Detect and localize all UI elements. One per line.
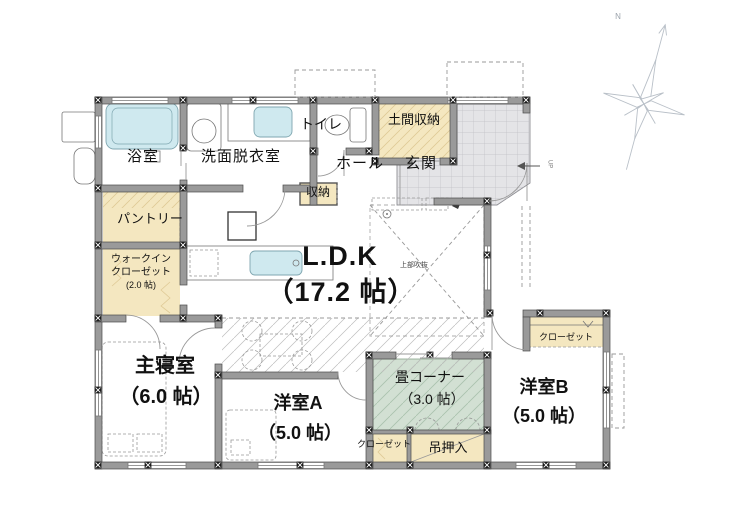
room-label-wic-line1: ウォークイン <box>111 255 171 266</box>
vanity-sink <box>254 107 292 137</box>
up-label: UP <box>546 160 552 168</box>
compass-n-label: N <box>615 13 621 21</box>
bathtub <box>106 103 178 149</box>
room-label-bath: 浴室 <box>127 149 159 165</box>
kitchen-sink <box>250 251 302 275</box>
room-label-master-size: （6.0 帖） <box>119 387 212 408</box>
room-label-room-a: 洋室A <box>274 394 323 413</box>
label-hanging-closet: 吊押入 <box>428 441 467 455</box>
room-label-room-b: 洋室B <box>520 378 569 397</box>
room-label-room-b-size: （5.0 帖） <box>502 407 586 426</box>
room-label-pantry: パントリー <box>117 212 183 226</box>
label-closet-a: クローゼット <box>357 440 411 449</box>
room-label-hall-storage: 収納 <box>306 186 330 199</box>
dining-hatch <box>222 318 484 372</box>
toilet-tank <box>350 108 366 142</box>
room-label-wic-line2: クローゼット <box>111 268 171 279</box>
compass-icon <box>586 14 706 181</box>
room-label-wic-size: (2.0 帖) <box>126 281 156 290</box>
water-heater <box>74 148 95 184</box>
washing-machine <box>187 103 221 151</box>
label-closet-b: クローゼット <box>539 333 593 342</box>
room-label-washroom: 洗面脱衣室 <box>201 149 281 165</box>
room-label-tatami-size: （3.0 帖） <box>399 392 464 407</box>
room-label-entrance: 玄関 <box>405 156 437 172</box>
room-label-hall: ホール <box>336 156 384 172</box>
room-label-toilet: トイレ <box>300 117 342 132</box>
outdoor-unit <box>62 112 95 142</box>
room-label-master: 主寝室 <box>135 356 195 377</box>
label-void-above: 上部吹抜 <box>400 262 428 269</box>
void-above-mark <box>370 205 484 336</box>
room-label-ldk-size: （17.2 帖） <box>266 278 415 306</box>
room-label-tatami: 畳コーナー <box>395 370 465 385</box>
room-label-ldk: L.D.K <box>302 242 378 270</box>
floorplan-canvas: 浴室 洗面脱衣室 トイレ 土間収納 ホール 玄関 収納 パントリー ウォークイン… <box>0 0 730 516</box>
room-label-room-a-size: （5.0 帖） <box>258 424 342 443</box>
room-label-doma-storage: 土間収納 <box>388 113 440 127</box>
